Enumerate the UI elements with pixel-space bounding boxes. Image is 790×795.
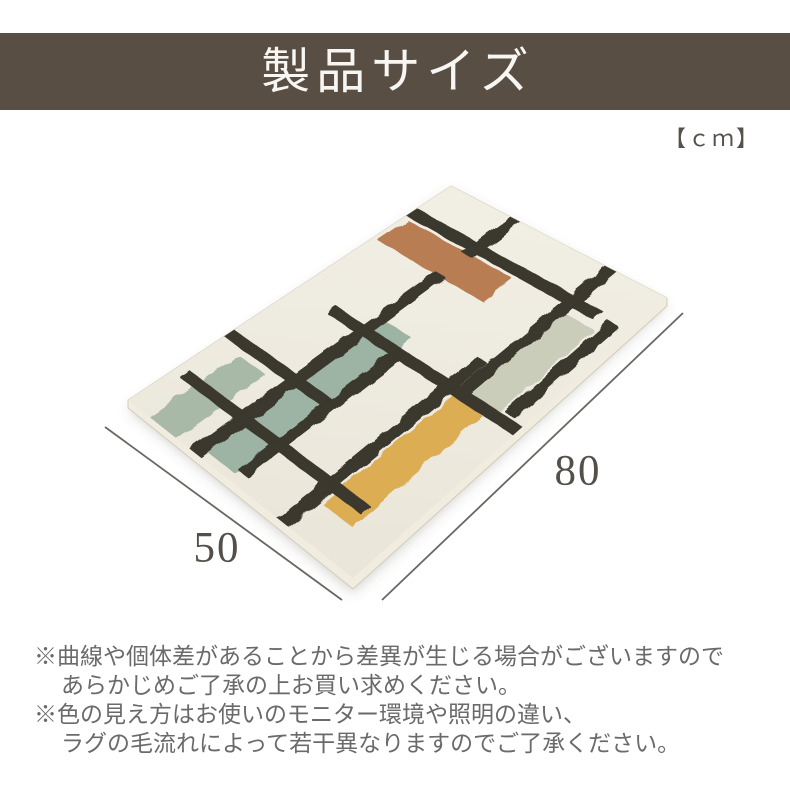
note-line: あらかじめご了承の上お買い求めください。 <box>34 671 774 700</box>
note-line: ※色の見え方はお使いのモニター環境や照明の違い、 <box>34 700 774 729</box>
dimension-label-50: 50 <box>194 527 241 570</box>
dimension-label-80: 80 <box>555 450 602 493</box>
note-line: ※曲線や個体差があることから差異が生じる場合がございますので <box>34 642 774 671</box>
disclaimer-notes: ※曲線や個体差があることから差異が生じる場合がございますので あらかじめご了承の… <box>34 642 774 758</box>
note-line: ラグの毛流れによって若干異なりますのでご了承ください。 <box>34 729 774 758</box>
unit-label: 【ｃｍ】 <box>664 121 760 153</box>
header-bar: 製品サイズ <box>0 33 790 110</box>
page-title: 製品サイズ <box>255 47 535 96</box>
